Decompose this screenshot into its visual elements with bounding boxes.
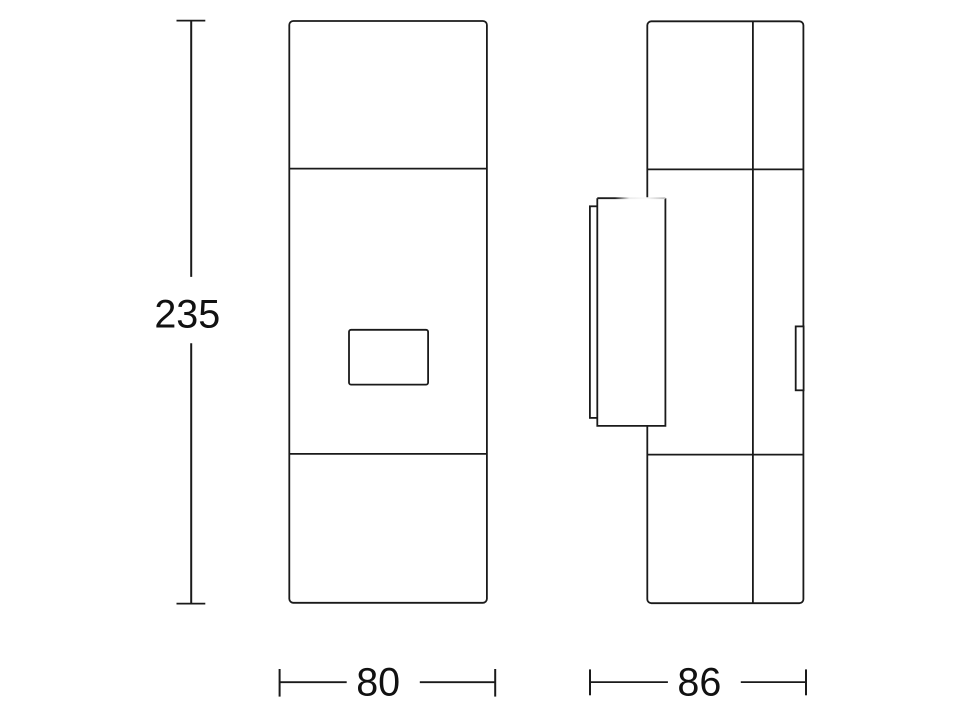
svg-text:80: 80	[356, 661, 400, 705]
svg-text:235: 235	[154, 292, 220, 336]
svg-text:86: 86	[677, 661, 721, 705]
